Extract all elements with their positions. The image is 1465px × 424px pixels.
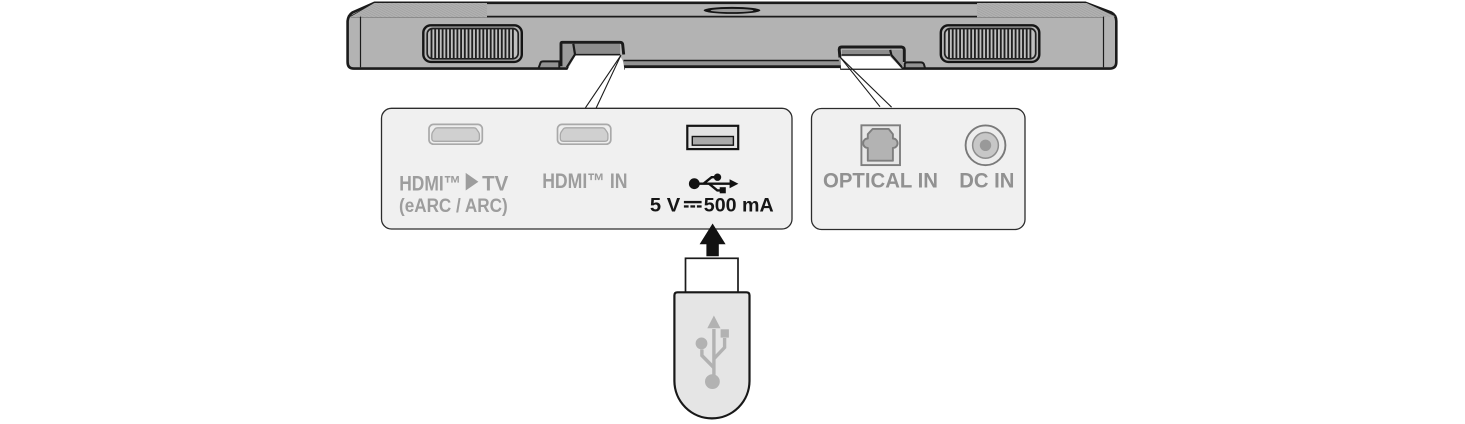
svg-text:TV: TV	[482, 172, 508, 195]
svg-text:DC IN: DC IN	[959, 169, 1014, 192]
svg-text:HDMI™: HDMI™	[399, 172, 461, 195]
svg-text:HDMI™ IN: HDMI™ IN	[542, 170, 627, 193]
svg-text:5 V: 5 V	[650, 195, 680, 217]
svg-text:(eARC / ARC): (eARC / ARC)	[399, 196, 508, 217]
svg-text:OPTICAL IN: OPTICAL IN	[823, 169, 938, 192]
svg-text:500 mA: 500 mA	[704, 195, 774, 217]
